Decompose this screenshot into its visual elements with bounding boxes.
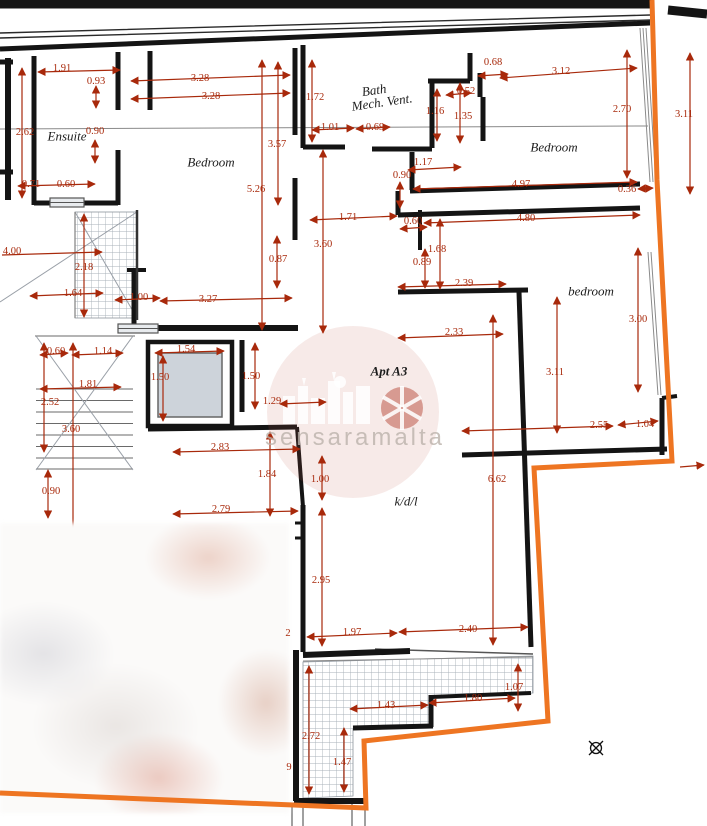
site-boundary-line — [0, 0, 672, 808]
boundary-arrow — [680, 465, 704, 467]
site-boundary-layer — [0, 0, 707, 826]
floor-plan: sensaramalta 1.910.932.620.900.710.604.0… — [0, 0, 707, 826]
survey-marker-icon — [589, 741, 603, 755]
